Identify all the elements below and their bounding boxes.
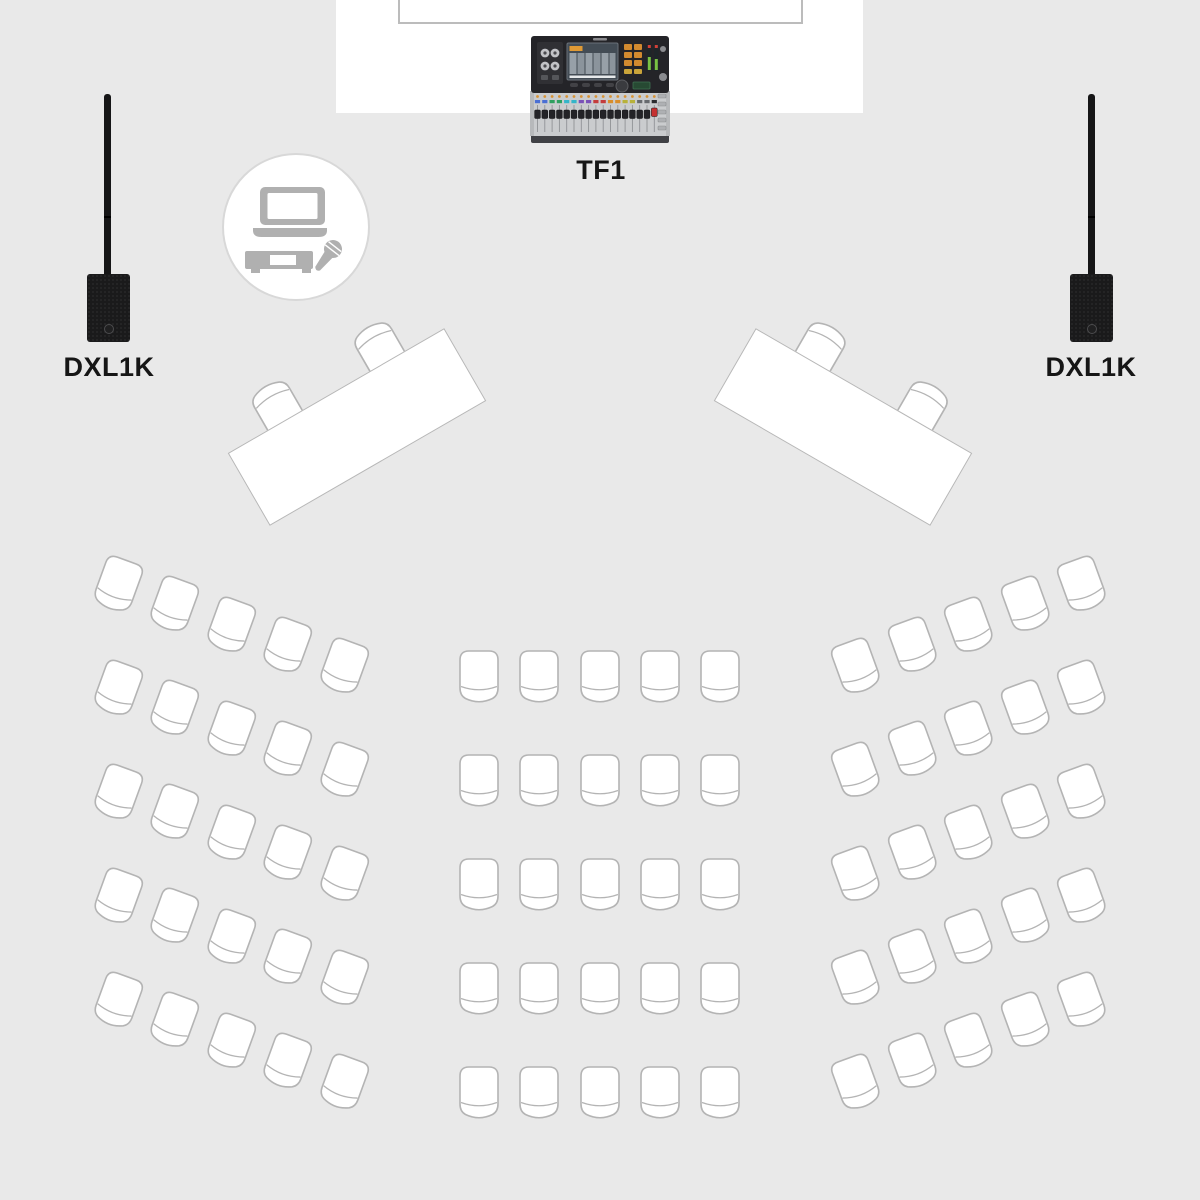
chair <box>147 989 203 1052</box>
chair <box>885 718 941 781</box>
chair <box>700 650 740 703</box>
chair <box>147 573 203 636</box>
chair <box>316 738 372 801</box>
chair <box>1054 552 1110 615</box>
chair <box>90 968 146 1031</box>
chair <box>459 962 499 1015</box>
chair <box>829 738 885 801</box>
chair <box>203 593 259 656</box>
chair <box>829 634 885 697</box>
chair <box>829 842 885 905</box>
chair <box>885 614 941 677</box>
chair <box>316 946 372 1009</box>
chair <box>998 677 1054 740</box>
chair <box>90 864 146 927</box>
chair <box>316 634 372 697</box>
chair <box>519 650 559 703</box>
chair <box>640 754 680 807</box>
chair <box>700 858 740 911</box>
audience-seating <box>0 0 1200 1200</box>
venue-setup-diagram: TF1 DXL1K DXL1K <box>0 0 1200 1200</box>
chair <box>1054 968 1110 1031</box>
chair <box>90 656 146 719</box>
chair <box>1054 656 1110 719</box>
chair <box>941 905 997 968</box>
chair <box>700 1066 740 1119</box>
chair <box>147 781 203 844</box>
chair <box>885 926 941 989</box>
chair <box>885 822 941 885</box>
chair <box>580 1066 620 1119</box>
chair <box>998 573 1054 636</box>
chair <box>580 962 620 1015</box>
chair <box>1054 760 1110 823</box>
chair <box>829 946 885 1009</box>
chair <box>700 962 740 1015</box>
chair <box>259 718 315 781</box>
chair <box>941 1009 997 1072</box>
chair <box>1054 864 1110 927</box>
chair <box>998 989 1054 1052</box>
chair <box>580 754 620 807</box>
chair <box>640 962 680 1015</box>
chair <box>519 754 559 807</box>
chair <box>90 760 146 823</box>
chair <box>519 962 559 1015</box>
chair <box>885 1030 941 1093</box>
chair <box>829 1050 885 1113</box>
chair <box>147 677 203 740</box>
chair <box>998 781 1054 844</box>
chair <box>941 697 997 760</box>
chair <box>147 885 203 948</box>
chair <box>90 552 146 615</box>
chair <box>316 1050 372 1113</box>
chair <box>259 822 315 885</box>
chair <box>459 650 499 703</box>
chair <box>259 1030 315 1093</box>
chair <box>459 754 499 807</box>
chair <box>580 650 620 703</box>
chair <box>259 614 315 677</box>
chair <box>203 1009 259 1072</box>
chair <box>640 858 680 911</box>
chair <box>941 593 997 656</box>
chair <box>941 801 997 864</box>
chair <box>203 801 259 864</box>
chair <box>519 858 559 911</box>
chair <box>700 754 740 807</box>
chair <box>459 1066 499 1119</box>
chair <box>203 905 259 968</box>
chair <box>640 1066 680 1119</box>
chair <box>519 1066 559 1119</box>
chair <box>203 697 259 760</box>
chair <box>998 885 1054 948</box>
chair <box>259 926 315 989</box>
chair <box>316 842 372 905</box>
chair <box>640 650 680 703</box>
chair <box>459 858 499 911</box>
chair <box>580 858 620 911</box>
